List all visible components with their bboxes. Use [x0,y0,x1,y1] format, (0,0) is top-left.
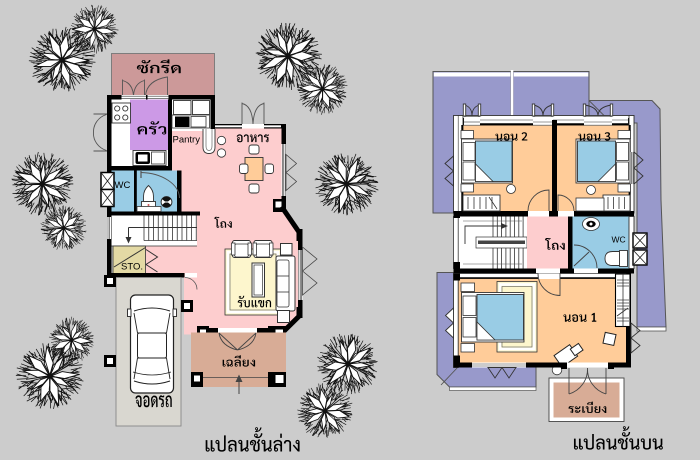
svg-text:WC: WC [115,180,131,191]
svg-text:STO.: STO. [121,262,143,273]
svg-text:Pantry: Pantry [173,135,201,146]
svg-text:WC: WC [612,235,626,245]
